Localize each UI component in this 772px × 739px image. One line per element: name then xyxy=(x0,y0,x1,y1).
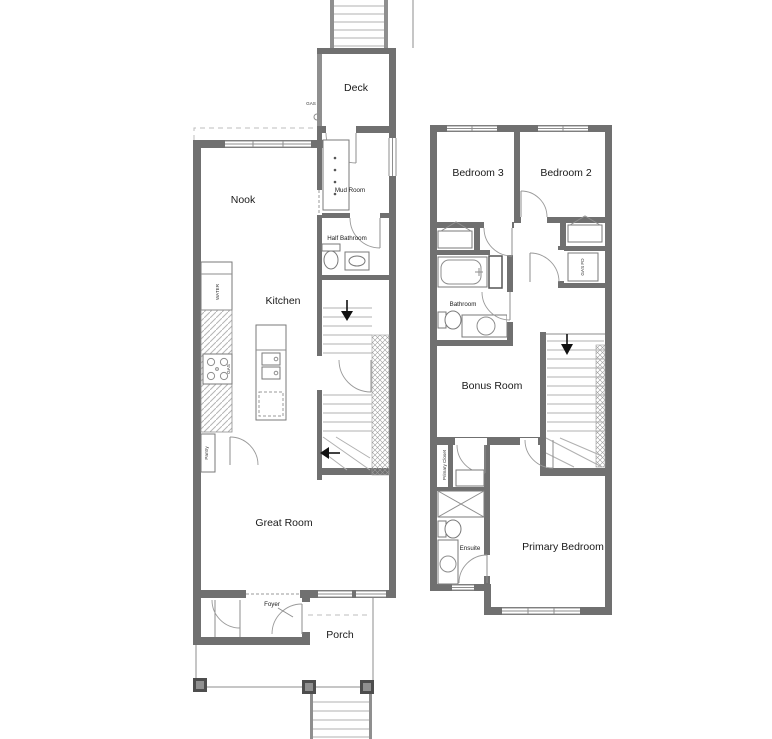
party-wall-hatch xyxy=(372,335,389,475)
bathroom-label: Bathroom xyxy=(450,301,477,308)
great-room-label: Great Room xyxy=(255,517,312,529)
wall xyxy=(558,283,605,288)
door-swing-arc xyxy=(521,191,547,217)
linen-cabinet xyxy=(489,256,502,288)
toilet-bowl xyxy=(445,311,461,329)
stair-rail xyxy=(384,0,388,48)
mud-room-bench xyxy=(323,140,349,210)
bedroom2-door-opening xyxy=(521,217,547,223)
closet-shelf xyxy=(438,231,472,248)
stair-door-opening xyxy=(317,356,322,390)
kitchen-label: Kitchen xyxy=(265,295,300,307)
wall xyxy=(605,125,612,615)
toilet-tank xyxy=(322,244,340,251)
wall xyxy=(514,132,520,223)
bedroom3-door-opening xyxy=(484,222,512,228)
bedroom3-label: Bedroom 3 xyxy=(452,167,504,179)
nook-window xyxy=(225,141,311,147)
sink-basin xyxy=(349,256,365,266)
floorplan-drawing: Deck GAS Mud Room Half Bathroom xyxy=(0,0,772,739)
door-swing-arc xyxy=(339,360,371,392)
wall xyxy=(193,140,201,645)
bathroom: Bathroom xyxy=(438,256,513,337)
door-swing-arc xyxy=(350,218,380,248)
door-opening xyxy=(520,438,538,445)
range-gas-label: GAS xyxy=(226,364,231,374)
stair-treads-lower xyxy=(323,395,372,431)
kitchen: Kitchen WATER GAS xyxy=(201,262,301,432)
wall xyxy=(540,468,612,476)
mechanical-closet: GAS FD xyxy=(530,250,598,282)
half-bathroom-label: Half Bathroom xyxy=(327,235,367,242)
wall xyxy=(193,637,310,645)
gas-meter-label: GAS xyxy=(306,101,316,106)
floor2-stairs xyxy=(546,334,605,467)
door-swing-arc xyxy=(457,445,485,473)
sink-vanity xyxy=(438,540,458,584)
door-opening xyxy=(455,438,487,445)
nook-label: Nook xyxy=(231,194,256,206)
deck-door-opening xyxy=(326,126,356,133)
floor2-plan: Bedroom 3 Bedroom 2 GAS FD xyxy=(430,125,612,615)
deck-label: Deck xyxy=(344,82,369,94)
floor1-stairs xyxy=(317,300,389,475)
stair-treads xyxy=(547,341,604,431)
closet-door-arc xyxy=(212,600,240,628)
closet-shelf xyxy=(568,225,602,242)
pantry-label: Pantry xyxy=(204,446,209,460)
floorplan-page: Deck GAS Mud Room Half Bathroom xyxy=(0,0,772,739)
foyer: Foyer xyxy=(212,600,310,637)
wall xyxy=(430,340,513,346)
stair-treads xyxy=(334,6,384,46)
wall xyxy=(560,217,566,246)
sink-bowl xyxy=(262,353,280,365)
wall xyxy=(540,332,546,476)
ensuite-label: Ensuite xyxy=(460,545,481,552)
wall xyxy=(430,125,437,591)
half-bathroom: Half Bathroom xyxy=(322,213,380,270)
toilet-bowl xyxy=(445,520,461,538)
wall xyxy=(317,275,389,280)
stair-winders xyxy=(546,438,602,467)
primary-bedroom-label: Primary Bedroom xyxy=(522,541,604,553)
primary-closet-label: Primary Closet xyxy=(442,449,447,480)
foyer-label: Foyer xyxy=(264,601,280,608)
wall xyxy=(317,133,322,480)
pantry: Pantry xyxy=(201,434,258,472)
closet-shelf xyxy=(456,470,484,486)
porch-columns xyxy=(193,678,374,694)
door-opening xyxy=(350,213,380,218)
stair-down-arrow xyxy=(341,311,353,321)
door-swing-arc xyxy=(459,555,487,583)
front-door-arc xyxy=(272,604,302,634)
party-wall-hatch xyxy=(596,345,605,467)
sink-bowl xyxy=(262,367,280,379)
wall xyxy=(317,48,396,54)
wall xyxy=(484,584,491,615)
floor1-plan: Deck GAS Mud Room Half Bathroom xyxy=(193,0,413,739)
wall xyxy=(448,443,453,487)
door-swing-arc xyxy=(530,253,559,282)
ensuite: Ensuite xyxy=(438,491,487,584)
bonus-room-label: Bonus Room xyxy=(462,380,523,392)
mud-room-label: Mud Room xyxy=(335,187,365,194)
porch-label: Porch xyxy=(326,629,354,641)
toilet-bowl xyxy=(324,251,338,269)
wall xyxy=(484,487,490,555)
water-heater-label: WATER xyxy=(215,283,220,300)
door-swing-arc xyxy=(230,437,258,465)
deck-exterior-stairs xyxy=(330,0,413,48)
mech-label: GAS FD xyxy=(580,258,585,276)
wall xyxy=(430,250,490,255)
front-door-opening xyxy=(302,602,310,632)
wall xyxy=(558,246,605,251)
wall xyxy=(430,487,484,491)
porch-steps xyxy=(310,694,372,739)
bedroom2-label: Bedroom 2 xyxy=(540,167,592,179)
stair-rail xyxy=(330,0,334,48)
